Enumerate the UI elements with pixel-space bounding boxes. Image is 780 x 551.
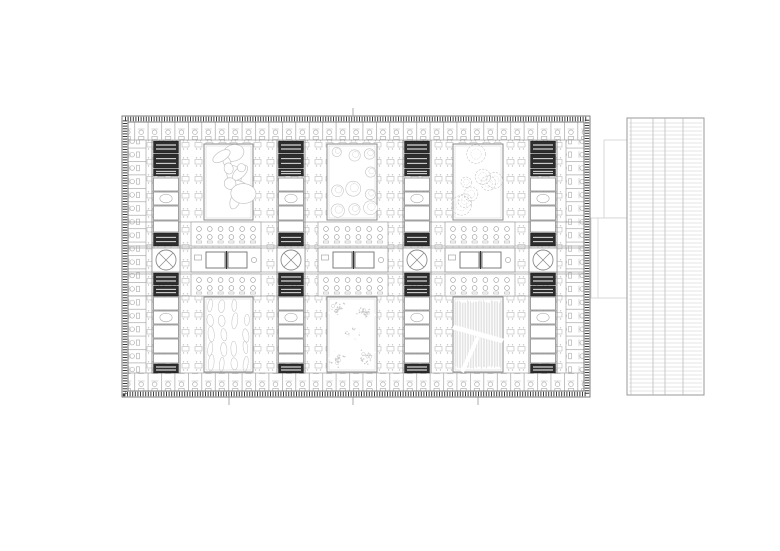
side-strip <box>627 118 704 395</box>
floor-plan-drawing <box>0 0 780 551</box>
central-corridor <box>191 248 515 272</box>
building-plan <box>122 116 590 397</box>
service-core-2 <box>277 140 305 373</box>
service-core-1 <box>152 140 180 373</box>
courtyard-1 <box>204 142 256 220</box>
drawing-sheet <box>0 0 780 551</box>
courtyard-3 <box>452 144 503 220</box>
service-core-4 <box>529 140 557 373</box>
connector <box>591 140 628 298</box>
service-core-3 <box>403 140 431 373</box>
courtyard-6 <box>453 297 503 372</box>
courtyard-2 <box>327 144 377 220</box>
courtyard-4 <box>204 297 253 372</box>
courtyard-5 <box>327 297 377 372</box>
